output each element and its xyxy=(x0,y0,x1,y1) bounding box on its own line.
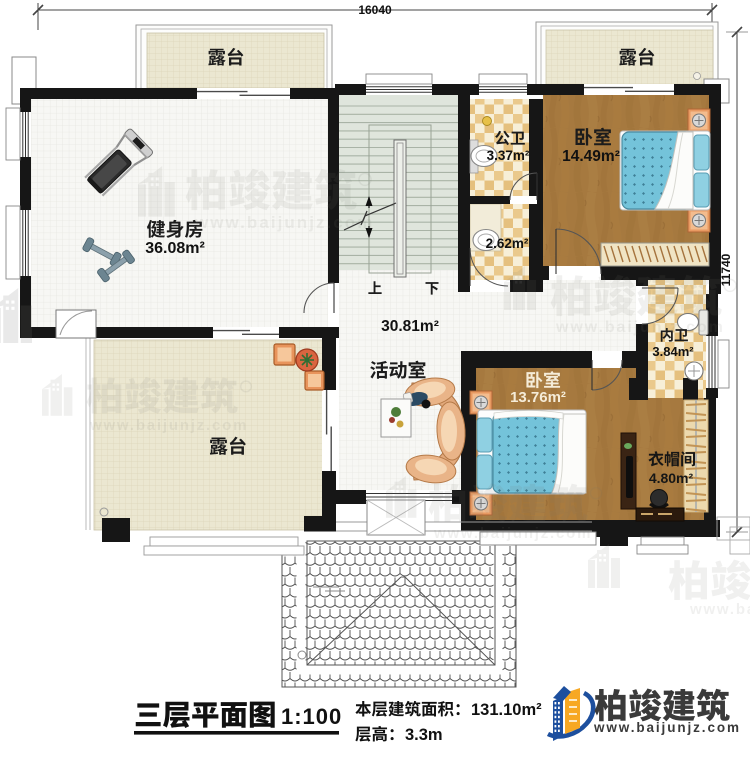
svg-text:www.baijunjz.com: www.baijunjz.com xyxy=(89,417,248,434)
svg-text:www.baijunjz.com: www.baijunjz.com xyxy=(433,525,592,542)
svg-text:1:100: 1:100 xyxy=(281,704,342,729)
svg-text:www.baijunjz.com: www.baijunjz.com xyxy=(593,720,741,735)
svg-text:131.10m²: 131.10m² xyxy=(471,701,542,719)
svg-text:30.81m²: 30.81m² xyxy=(381,318,439,335)
svg-text:16040: 16040 xyxy=(358,3,392,17)
svg-text:3.37m²: 3.37m² xyxy=(487,148,530,163)
svg-text:4.80m²: 4.80m² xyxy=(649,470,694,486)
svg-text:14.49m²: 14.49m² xyxy=(562,148,620,165)
svg-text:3.3m: 3.3m xyxy=(405,726,443,744)
svg-text:13.76m²: 13.76m² xyxy=(510,389,566,406)
svg-text:www.baijunjz.com: www.baijunjz.com xyxy=(194,213,374,232)
svg-text:www.baijunjz.com: www.baijunjz.com xyxy=(555,319,725,336)
svg-text:2.62m²: 2.62m² xyxy=(486,236,529,251)
svg-text:36.08m²: 36.08m² xyxy=(145,240,205,257)
svg-text:www.baijunjz.com: www.baijunjz.com xyxy=(689,601,750,618)
svg-text:3.84m²: 3.84m² xyxy=(652,344,694,359)
